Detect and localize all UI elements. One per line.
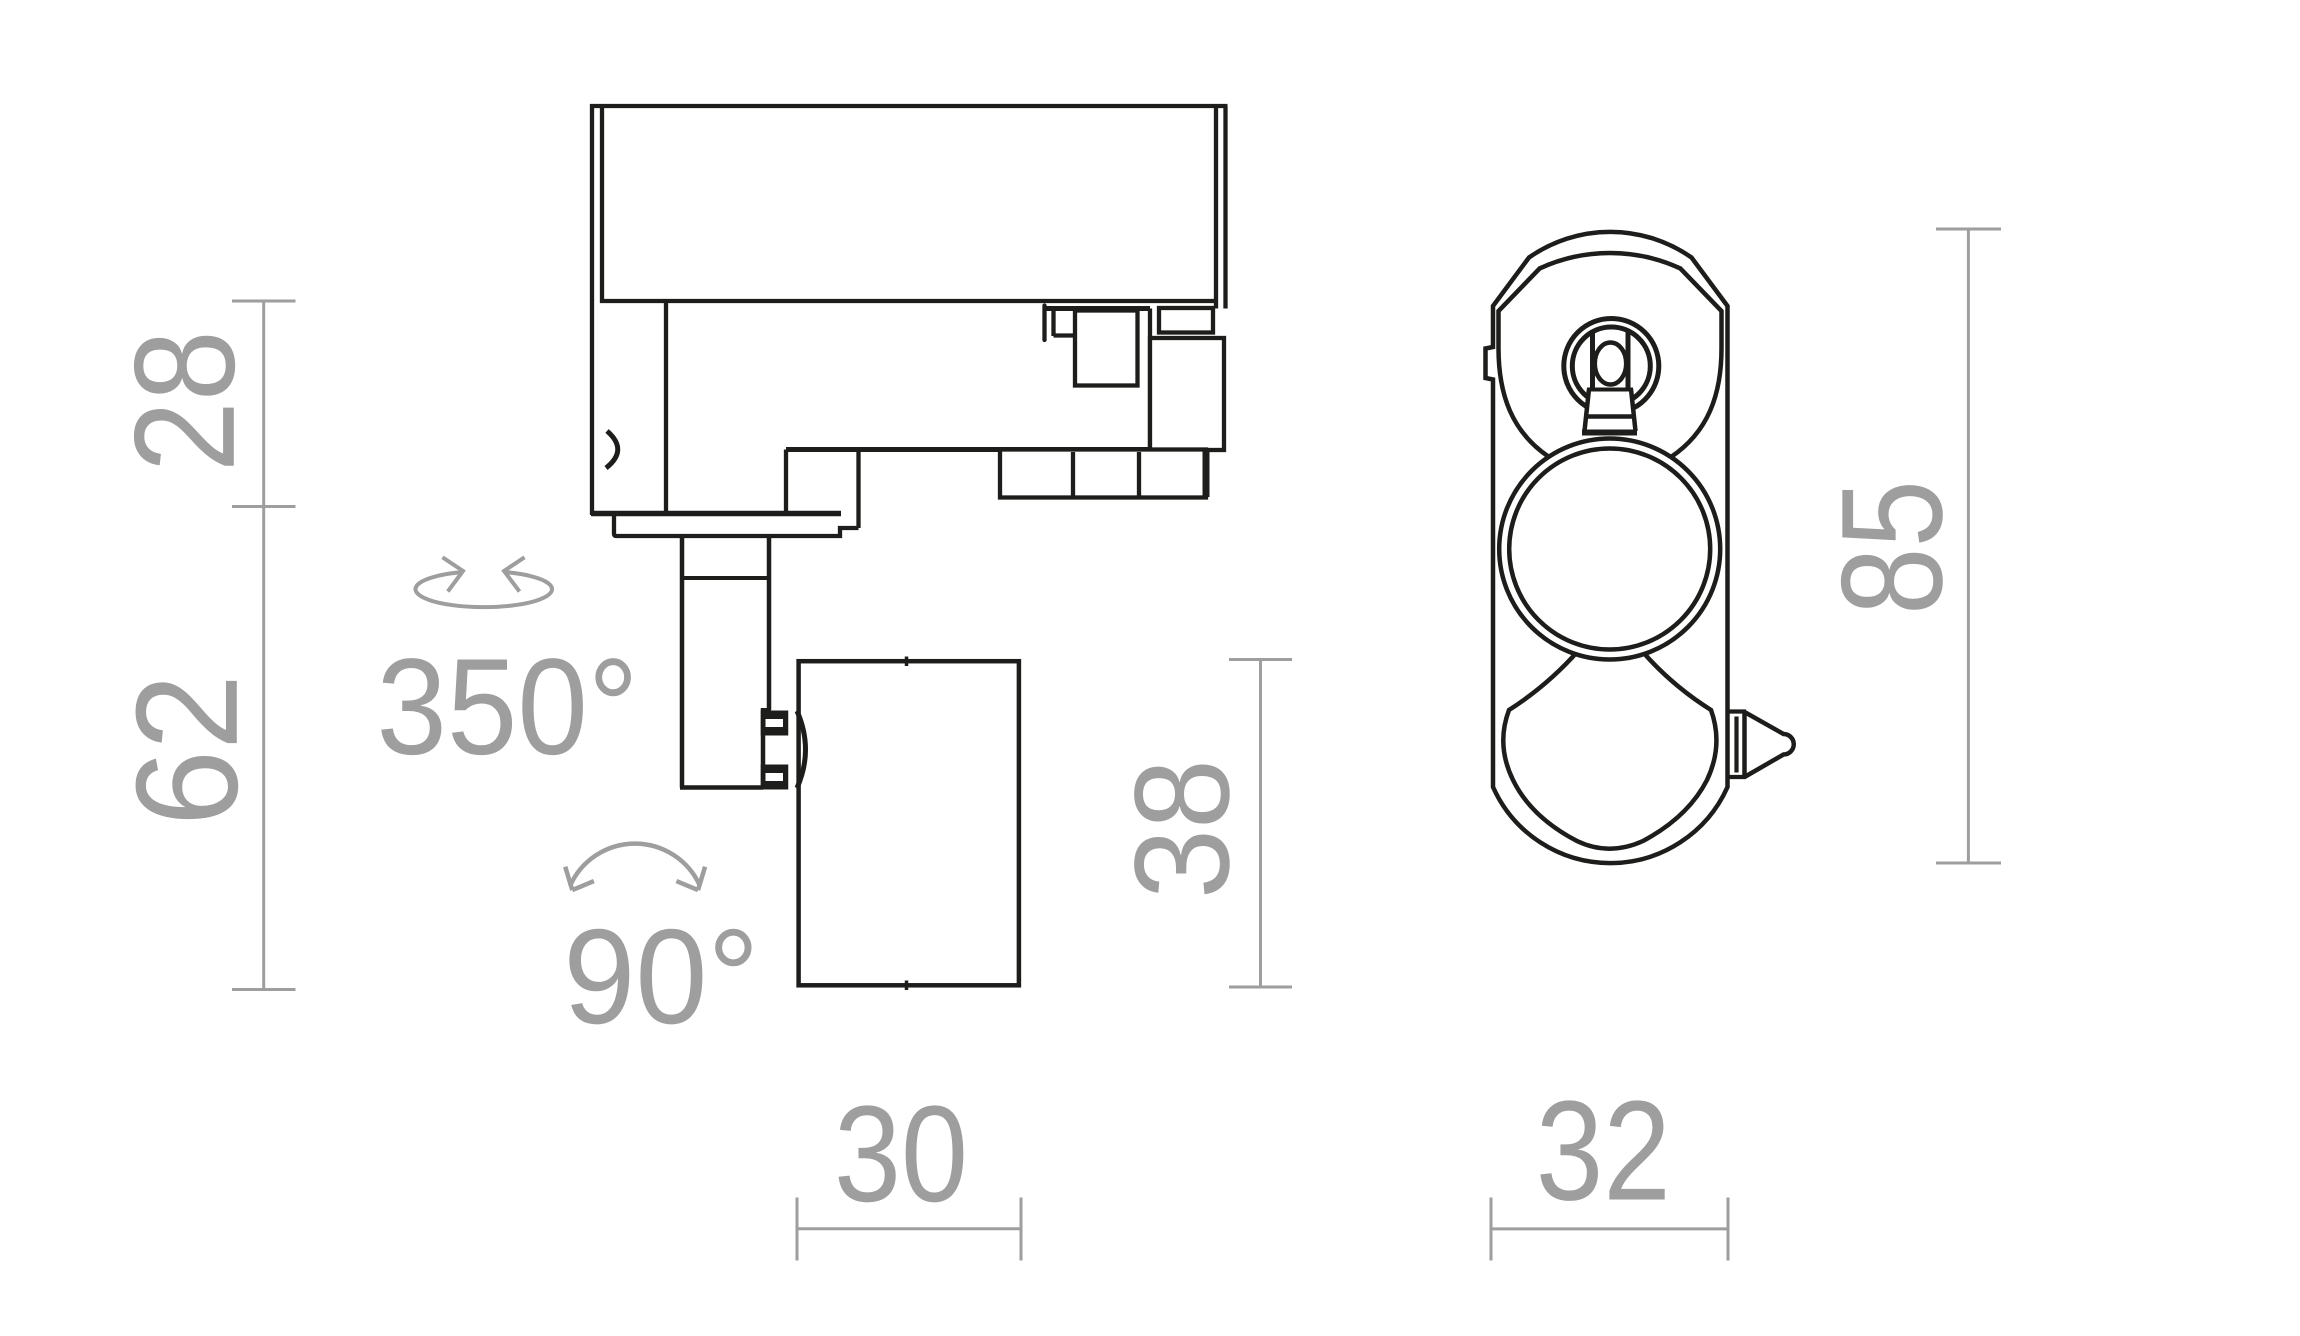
svg-text:62: 62	[106, 674, 268, 826]
svg-text:28: 28	[106, 330, 265, 472]
svg-text:90°: 90°	[563, 901, 759, 1052]
svg-text:350°: 350°	[377, 631, 639, 784]
svg-text:38: 38	[1106, 759, 1257, 899]
svg-text:32: 32	[1536, 1072, 1671, 1231]
svg-text:30: 30	[834, 1078, 968, 1231]
svg-text:85: 85	[1811, 480, 1972, 615]
